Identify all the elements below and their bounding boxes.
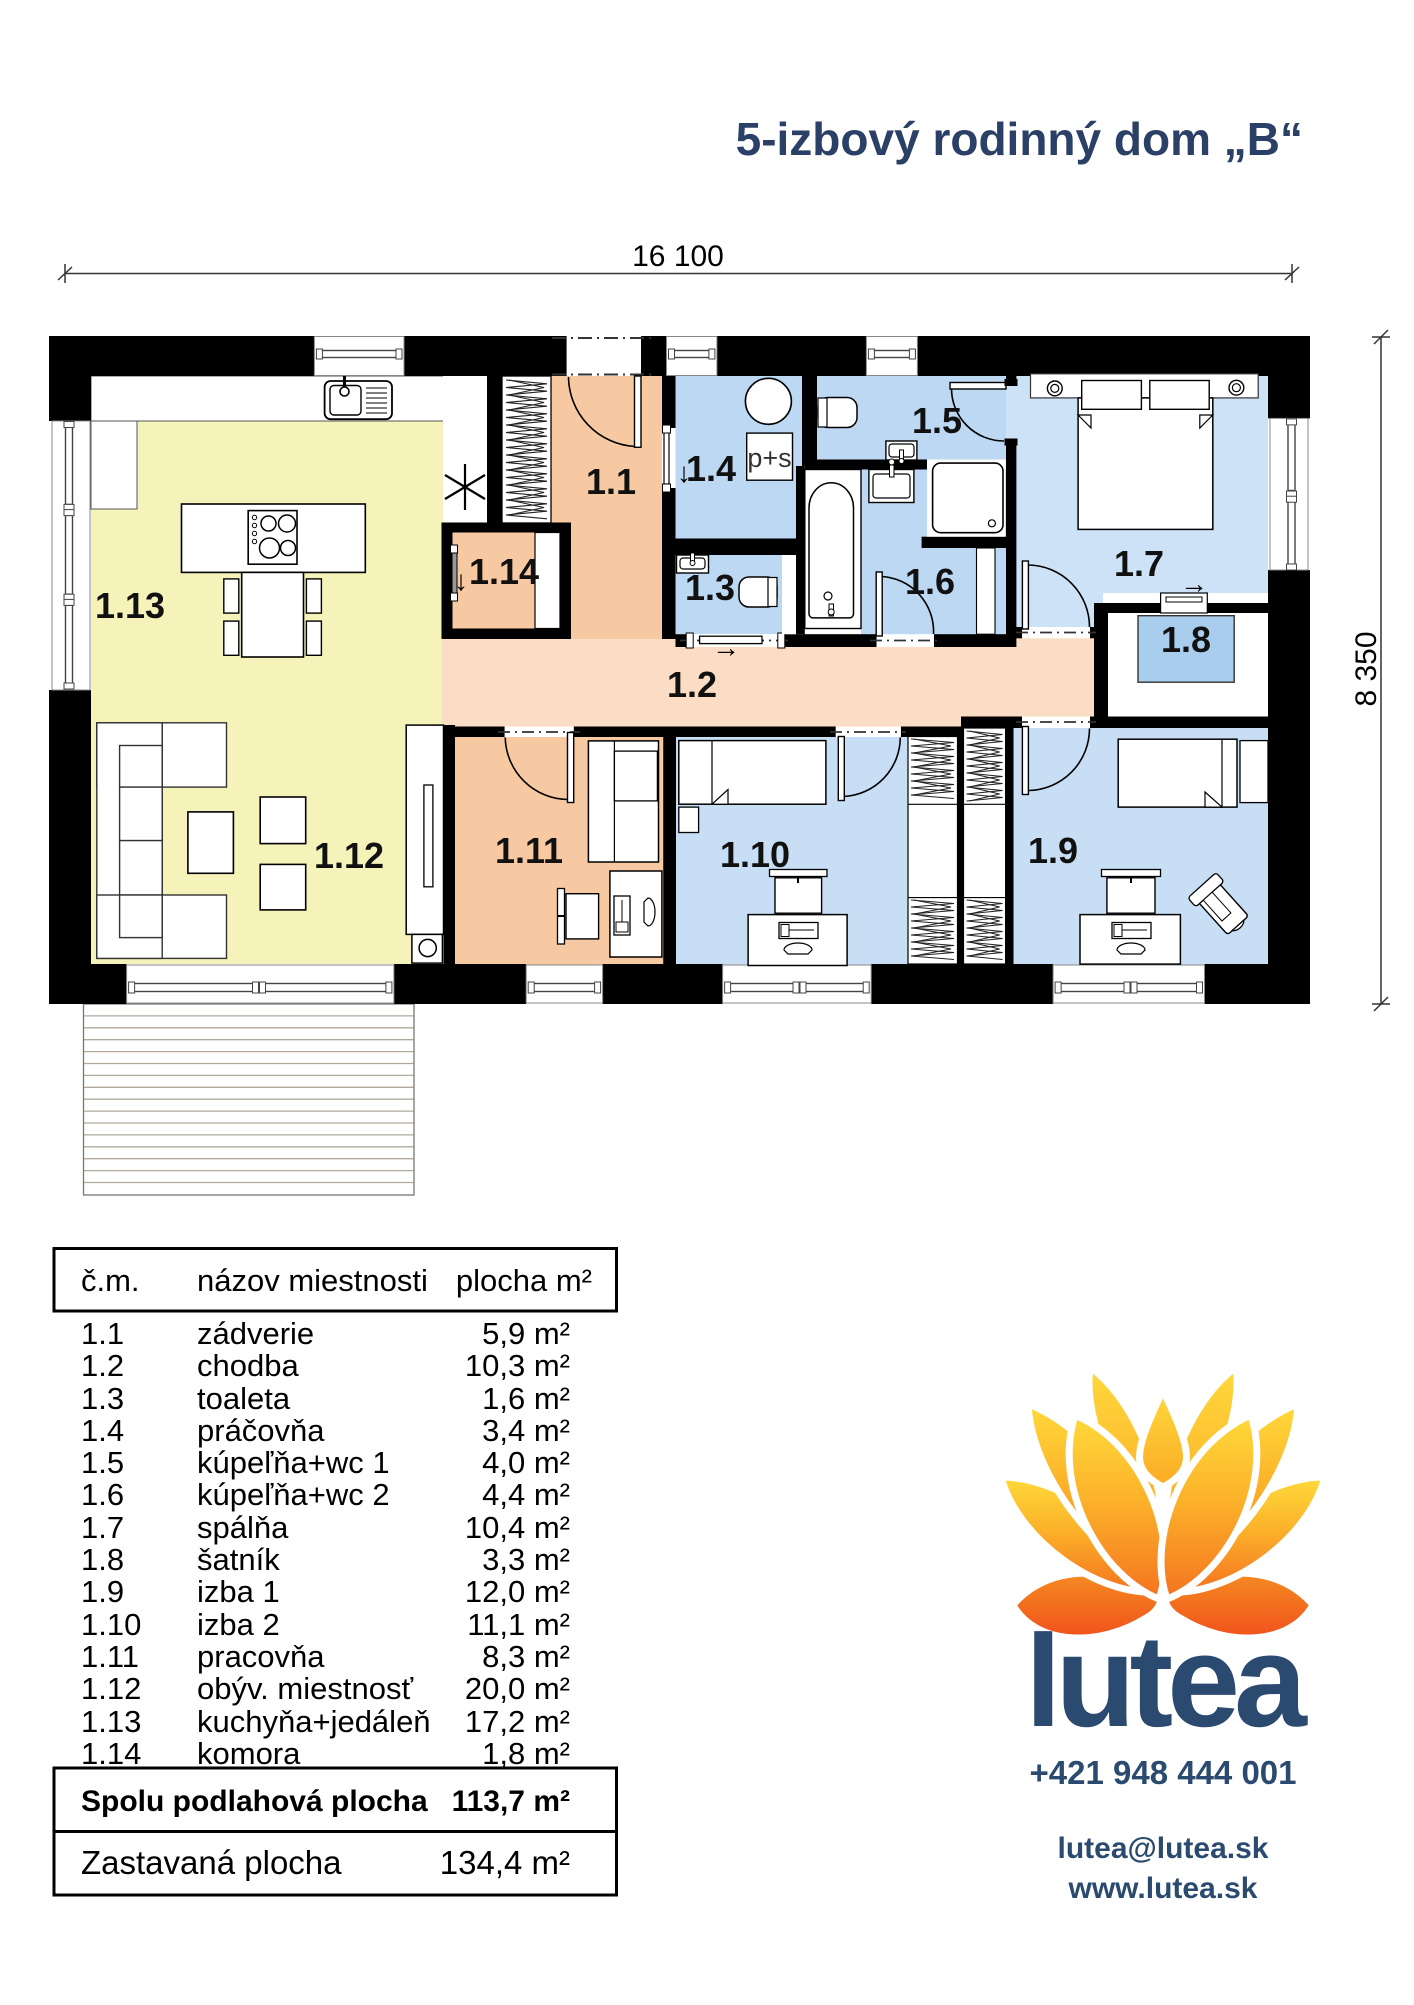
svg-text:práčovňa: práčovňa	[197, 1413, 325, 1448]
svg-text:4,0 m²: 4,0 m²	[482, 1445, 570, 1480]
svg-text:1.12: 1.12	[81, 1671, 141, 1706]
svg-text:1.11: 1.11	[81, 1639, 139, 1674]
svg-text:1.12: 1.12	[314, 835, 384, 876]
svg-text:1,6 m²: 1,6 m²	[482, 1381, 570, 1416]
svg-text:↓: ↓	[454, 565, 468, 596]
svg-text:1.14: 1.14	[81, 1736, 141, 1771]
svg-text:1.8: 1.8	[1161, 619, 1211, 660]
svg-text:1.4: 1.4	[81, 1413, 124, 1448]
svg-text:1.11: 1.11	[495, 830, 563, 871]
svg-text:1.1: 1.1	[81, 1316, 124, 1351]
svg-text:obýv. miestnosť: obýv. miestnosť	[197, 1671, 413, 1706]
svg-text:→: →	[712, 632, 740, 663]
svg-text:izba 2: izba 2	[197, 1607, 280, 1642]
svg-text:1.6: 1.6	[905, 561, 955, 602]
svg-text:10,3 m²: 10,3 m²	[465, 1348, 570, 1383]
svg-text:izba 1: izba 1	[197, 1574, 280, 1609]
svg-text:1.10: 1.10	[720, 834, 790, 875]
svg-text:→: →	[1180, 568, 1208, 599]
svg-text:1.3: 1.3	[81, 1381, 124, 1416]
svg-text:Spolu podlahová plocha: Spolu podlahová plocha	[81, 1785, 428, 1818]
svg-text:1.7: 1.7	[81, 1510, 124, 1545]
svg-text:1.2: 1.2	[667, 664, 717, 705]
svg-text:5-izbový rodinný dom „B“: 5-izbový rodinný dom „B“	[736, 113, 1303, 165]
svg-text:3,4 m²: 3,4 m²	[482, 1413, 570, 1448]
svg-text:Zastavaná plocha: Zastavaná plocha	[81, 1844, 342, 1881]
svg-text:1.5: 1.5	[81, 1445, 124, 1480]
svg-text:č.m.: č.m.	[81, 1263, 140, 1298]
svg-text:1.5: 1.5	[912, 400, 962, 441]
svg-text:lutea: lutea	[1025, 1607, 1308, 1754]
svg-text:p+s: p+s	[747, 443, 791, 473]
svg-text:1.6: 1.6	[81, 1477, 124, 1512]
svg-text:1.2: 1.2	[81, 1348, 124, 1383]
svg-text:1.4: 1.4	[686, 448, 736, 489]
svg-text:20,0 m²: 20,0 m²	[465, 1671, 570, 1706]
svg-text:lutea@lutea.sk: lutea@lutea.sk	[1058, 1832, 1269, 1865]
svg-text:1,8 m²: 1,8 m²	[482, 1736, 570, 1771]
svg-text:1.9: 1.9	[1028, 830, 1078, 871]
svg-text:3,3 m²: 3,3 m²	[482, 1542, 570, 1577]
svg-text:17,2 m²: 17,2 m²	[465, 1704, 570, 1739]
svg-text:kuchyňa+jedáleň: kuchyňa+jedáleň	[197, 1704, 431, 1739]
svg-text:spálňa: spálňa	[197, 1510, 289, 1545]
svg-text:134,4 m²: 134,4 m²	[440, 1844, 570, 1881]
svg-text:16 100: 16 100	[632, 240, 724, 273]
svg-text:4,4 m²: 4,4 m²	[482, 1477, 570, 1512]
svg-text:10,4 m²: 10,4 m²	[465, 1510, 570, 1545]
svg-text:1.3: 1.3	[685, 567, 735, 608]
svg-text:+421 948 444 001: +421 948 444 001	[1029, 1754, 1296, 1791]
svg-text:pracovňa: pracovňa	[197, 1639, 325, 1674]
svg-text:113,7 m²: 113,7 m²	[452, 1785, 570, 1818]
svg-text:názov miestnosti: názov miestnosti	[197, 1263, 428, 1298]
svg-text:1.14: 1.14	[469, 551, 539, 592]
svg-text:8 350: 8 350	[1350, 631, 1383, 706]
svg-text:1.13: 1.13	[95, 585, 165, 626]
svg-text:11,1 m²: 11,1 m²	[467, 1607, 570, 1642]
svg-text:1.8: 1.8	[81, 1542, 124, 1577]
svg-text:1.1: 1.1	[586, 461, 636, 502]
svg-text:1.13: 1.13	[81, 1704, 141, 1739]
svg-text:www.lutea.sk: www.lutea.sk	[1068, 1872, 1258, 1905]
svg-text:toaleta: toaleta	[197, 1381, 291, 1416]
svg-text:komora: komora	[197, 1736, 301, 1771]
svg-text:1.9: 1.9	[81, 1574, 124, 1609]
svg-text:5,9 m²: 5,9 m²	[482, 1316, 570, 1351]
svg-text:zádverie: zádverie	[197, 1316, 314, 1351]
svg-text:1.7: 1.7	[1114, 543, 1164, 584]
svg-text:kúpeľňa+wc 1: kúpeľňa+wc 1	[197, 1445, 390, 1480]
svg-text:plocha m²: plocha m²	[456, 1263, 592, 1298]
svg-text:12,0 m²: 12,0 m²	[465, 1574, 570, 1609]
svg-text:8,3 m²: 8,3 m²	[482, 1639, 570, 1674]
svg-text:1.10: 1.10	[81, 1607, 141, 1642]
svg-text:chodba: chodba	[197, 1348, 299, 1383]
svg-text:kúpeľňa+wc 2: kúpeľňa+wc 2	[197, 1477, 390, 1512]
svg-text:šatník: šatník	[197, 1542, 280, 1577]
